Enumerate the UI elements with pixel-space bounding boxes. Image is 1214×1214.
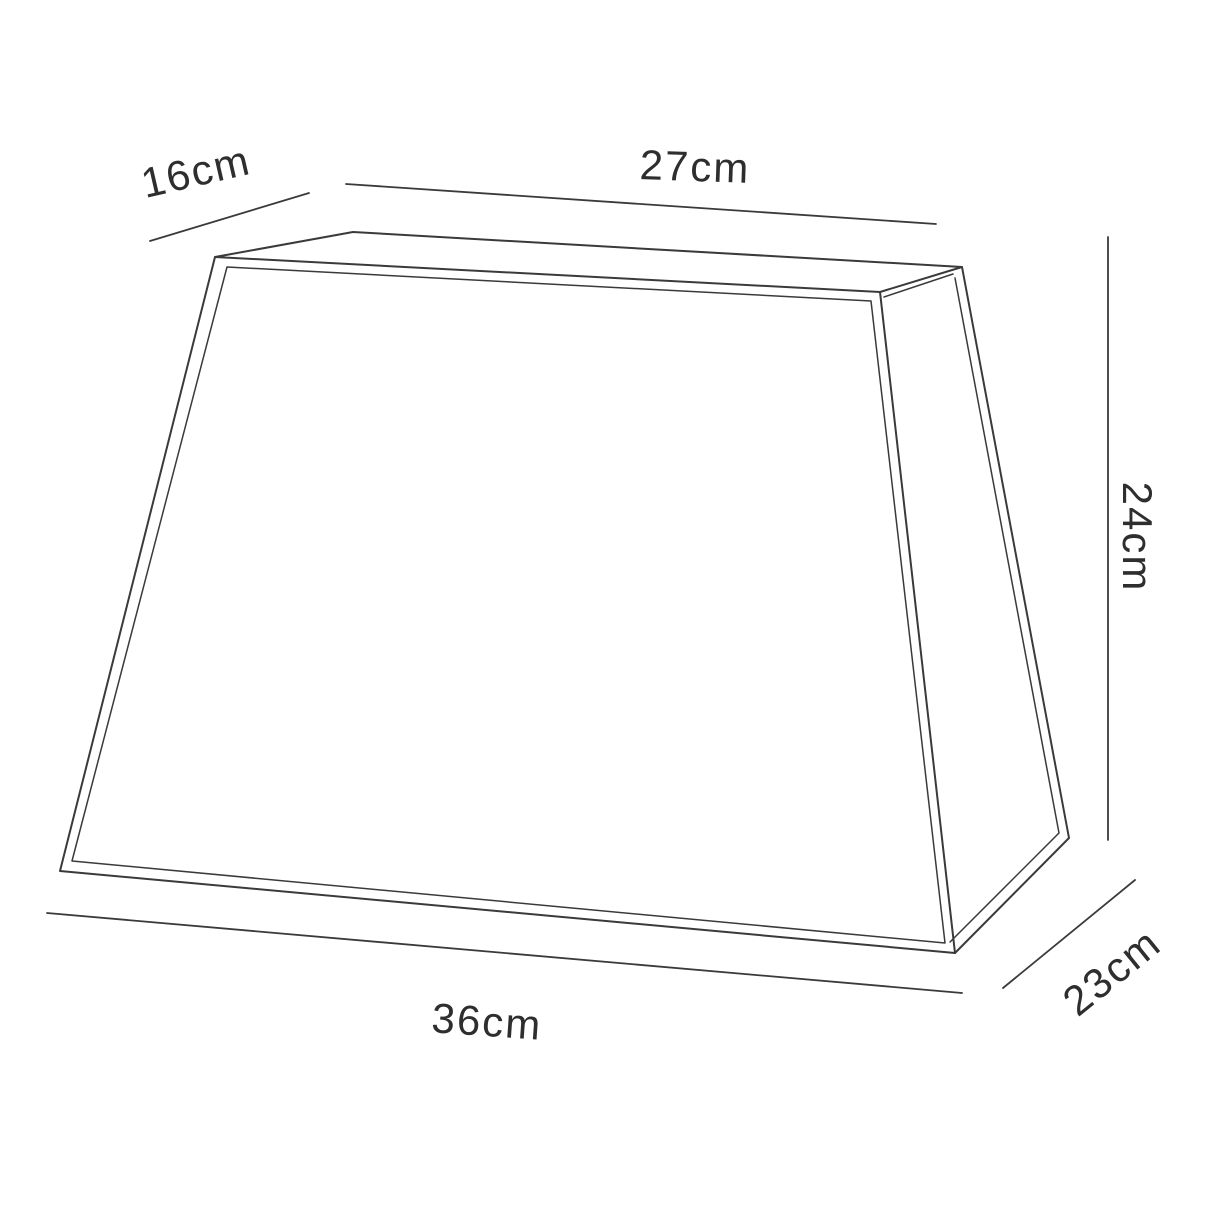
dim-label-36cm: 36cm [430, 994, 544, 1050]
lampshade-dimension-diagram: 16cm 27cm 24cm 23cm 36cm [0, 0, 1214, 1214]
dimension-lines [47, 184, 1135, 993]
side-face-inner [950, 278, 1059, 942]
lampshade-outline [60, 232, 1069, 953]
front-face-outer [60, 257, 955, 953]
dim-label-27cm: 27cm [639, 141, 751, 193]
dim-line-36cm [47, 913, 962, 993]
front-face-inner [72, 267, 945, 943]
dim-line-27cm [346, 184, 936, 224]
dim-label-24cm: 24cm [1113, 482, 1161, 593]
top-face-inner-edge [884, 274, 953, 297]
